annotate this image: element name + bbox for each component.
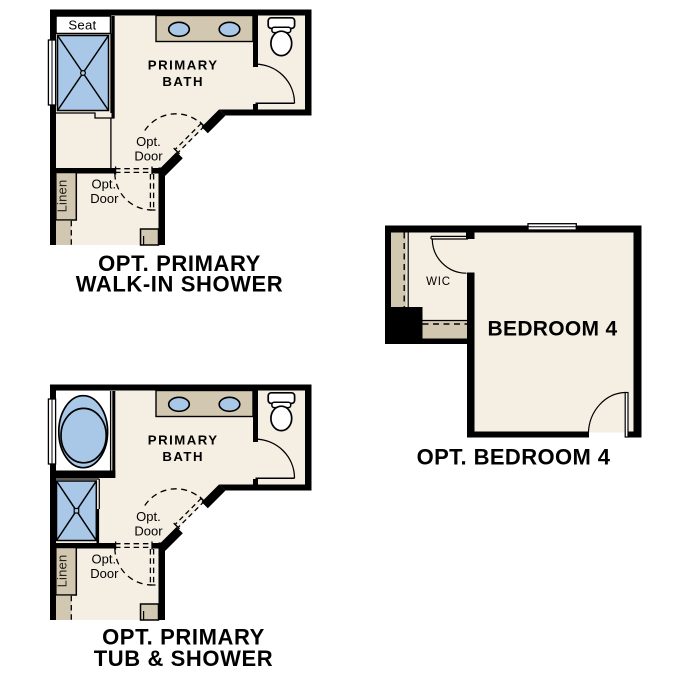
svg-text:PRIMARY: PRIMARY bbox=[148, 432, 219, 447]
svg-text:Opt.: Opt. bbox=[136, 134, 161, 149]
svg-text:WIC: WIC bbox=[426, 276, 451, 288]
svg-text:Linen: Linen bbox=[55, 555, 70, 588]
svg-text:BATH: BATH bbox=[162, 74, 204, 89]
svg-text:Seat: Seat bbox=[68, 18, 96, 33]
svg-text:TUB & SHOWER: TUB & SHOWER bbox=[94, 646, 274, 671]
svg-text:Door: Door bbox=[134, 524, 163, 539]
svg-text:Linen: Linen bbox=[55, 180, 70, 213]
svg-text:BEDROOM 4: BEDROOM 4 bbox=[488, 317, 618, 340]
svg-text:Door: Door bbox=[90, 566, 119, 581]
svg-text:Opt.: Opt. bbox=[136, 509, 161, 524]
svg-text:PRIMARY: PRIMARY bbox=[148, 57, 219, 72]
svg-text:Opt.: Opt. bbox=[92, 551, 117, 566]
svg-text:Opt.: Opt. bbox=[92, 176, 117, 191]
svg-text:Door: Door bbox=[134, 149, 163, 164]
svg-text:BATH: BATH bbox=[162, 449, 204, 464]
svg-text:WALK-IN SHOWER: WALK-IN SHOWER bbox=[76, 272, 284, 297]
svg-text:OPT. BEDROOM 4: OPT. BEDROOM 4 bbox=[417, 445, 611, 470]
svg-text:Door: Door bbox=[90, 191, 119, 206]
